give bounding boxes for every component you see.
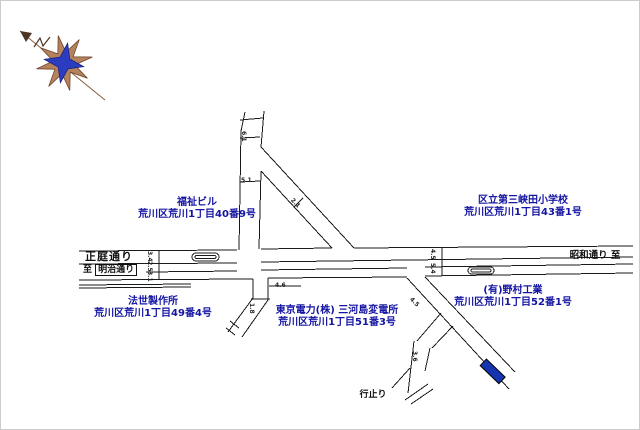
road-width-dimension: 3.1 — [146, 271, 153, 282]
road-width-dimension: 5.1 — [241, 177, 252, 184]
median-island-left — [192, 253, 219, 261]
place-address: 荒川区荒川1丁目51番3号 — [276, 317, 399, 329]
place-name: 区立第三峡田小学校 — [464, 195, 582, 207]
road-width-dimension: 4.6 — [275, 282, 286, 289]
road-label-shotei-dori: 正庭通り — [85, 251, 133, 263]
place-label-daisan-hakeda-elementary-school: 区立第三峡田小学校 荒川区荒川1丁目43番1号 — [464, 195, 582, 219]
road-width-dimension: 1.8 — [248, 303, 255, 314]
north-arrow-icon — [20, 31, 32, 42]
map-canvas: 福祉ビル 荒川区荒川1丁目40番9号 区立第三峡田小学校 荒川区荒川1丁目43番… — [0, 0, 640, 430]
road-width-dimension: 4.5 — [429, 249, 436, 260]
place-name: (有)野村工業 — [454, 285, 572, 297]
to-prefix: 至 — [83, 265, 92, 275]
place-label-nomura-kogyo: (有)野村工業 荒川区荒川1丁目52番1号 — [454, 285, 572, 309]
road-label-to-meiji-dori: 至 明治通り — [83, 264, 137, 276]
road-label-showa-dori: 昭和通り 至 — [570, 250, 621, 262]
place-address: 荒川区荒川1丁目52番1号 — [454, 297, 572, 309]
place-name: 東京電力(株) 三河島変電所 — [276, 305, 399, 317]
northeast-diagonal-road — [261, 147, 354, 248]
place-address: 荒川区荒川1丁目49番4号 — [94, 308, 212, 320]
place-address: 荒川区荒川1丁目40番9号 — [138, 209, 256, 221]
place-name: 福祉ビル — [138, 197, 256, 209]
median-island-right — [468, 267, 494, 274]
dead-end-label: 行止り — [359, 389, 386, 401]
place-label-hosei-factory: 法世製作所 荒川区荒川1丁目49番4号 — [94, 296, 212, 320]
road-width-dimension: 3.6 — [411, 351, 418, 362]
compass-star-4point — [44, 43, 83, 82]
place-address: 荒川区荒川1丁目43番1号 — [464, 207, 582, 219]
building-marker — [480, 359, 505, 384]
place-label-fukushi-building: 福祉ビル 荒川区荒川1丁目40番9号 — [138, 197, 256, 221]
main-road — [79, 246, 633, 288]
compass-rose-icon — [20, 31, 105, 100]
meiji-dori-name: 明治通り — [95, 264, 137, 276]
road-width-dimension: 5.4 — [429, 263, 436, 274]
place-name: 法世製作所 — [94, 296, 212, 308]
place-label-tepco-mikawashima-substation: 東京電力(株) 三河島変電所 荒川区荒川1丁目51番3号 — [276, 305, 399, 329]
road-width-dimension: 6.1 — [240, 131, 247, 142]
